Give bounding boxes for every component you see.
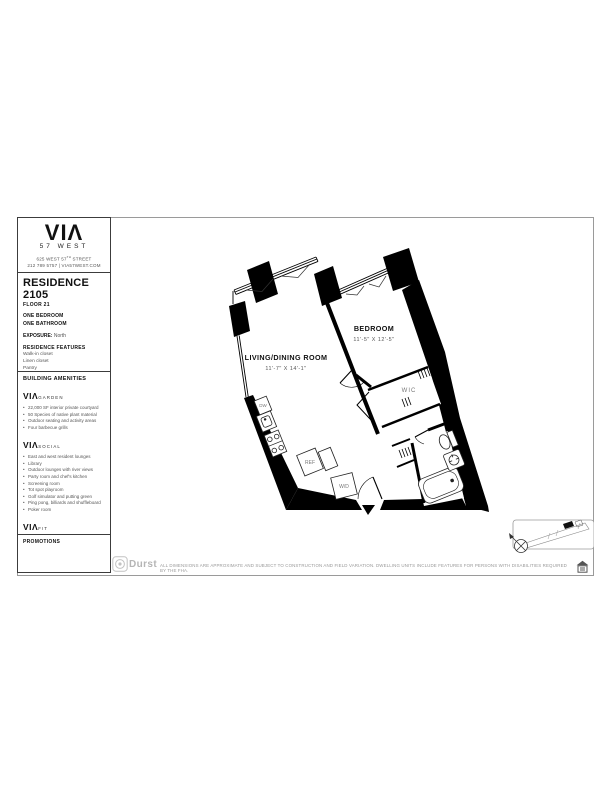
bathroom-count: ONE BATHROOM [23,321,105,329]
amenity-item: Poker room [23,507,105,514]
promotions-header: PROMOTIONS [23,539,105,545]
amenities-header: BUILDING AMENITIES [23,376,105,382]
floor-plan: LIVING/DINING ROOM 11'-7" X 14'-1" BEDRO… [111,217,594,576]
living-room-label: LIVING/DINING ROOM [245,353,328,362]
wd-label: W/D [339,484,349,490]
dw-label: DW [259,403,267,408]
amenity-group-fit-header: VIΛFIT [23,517,105,535]
bed-bath: ONE BEDROOM ONE BATHROOM [23,313,105,328]
promotions-panel: PROMOTIONS [17,534,111,573]
via-logo: VIΛ [18,224,110,242]
address-line: 625 WEST 57TH STREET [18,255,110,263]
wic-label: WIC [402,388,417,394]
bedroom-label: BEDROOM [354,324,394,333]
residence-panel: RESIDENCE 2105 FLOOR 21 ONE BEDROOM ONE … [17,272,111,372]
residence-floor: FLOOR 21 [23,302,105,308]
key-plan [509,520,594,553]
floorplan-sheet: VIΛ 57 WEST 625 WEST 57TH STREET 212 789… [0,0,612,792]
amenity-group-social-header: VIΛSOCIAL [23,435,105,453]
contact-line: 212 789 5757 | VIA57WEST.COM [18,263,110,270]
exposure: EXPOSURE: North [23,333,105,339]
bedroom-count: ONE BEDROOM [23,313,105,321]
living-room-dims: 11'-7" X 14'-1" [265,366,306,372]
brand-panel: VIΛ 57 WEST 625 WEST 57TH STREET 212 789… [17,217,111,273]
amenity-list-social: East and west resident lounges Library O… [23,454,105,513]
via-logo-subtitle: 57 WEST [18,243,110,250]
feature-item: Walk-in closet [23,352,105,359]
residence-title: RESIDENCE 2105 [23,277,105,301]
equal-housing-icon [576,560,589,573]
entry-marker [362,505,375,515]
amenity-list-garden: 22,000 SF interior private courtyard 50 … [23,405,105,431]
feature-item: Linen closet [23,359,105,366]
ref-label: REF [305,460,315,466]
disclaimer-text: ALL DIMENSIONS ARE APPROXIMATE AND SUBJE… [160,563,568,573]
durst-logo-icon [112,556,128,572]
amenities-panel: BUILDING AMENITIES VIΛGARDEN 22,000 SF i… [17,371,111,535]
address-block: 625 WEST 57TH STREET 212 789 5757 | VIA5… [18,255,110,270]
amenity-group-garden-header: VIΛGARDEN [23,386,105,404]
features-header: RESIDENCE FEATURES [23,345,105,351]
durst-logo-text: Durst [129,559,157,570]
durst-logo: Durst [112,556,158,574]
amenity-item: Four barbecue grills [23,425,105,432]
bedroom-dims: 11'-5" X 12'-5" [353,337,394,343]
